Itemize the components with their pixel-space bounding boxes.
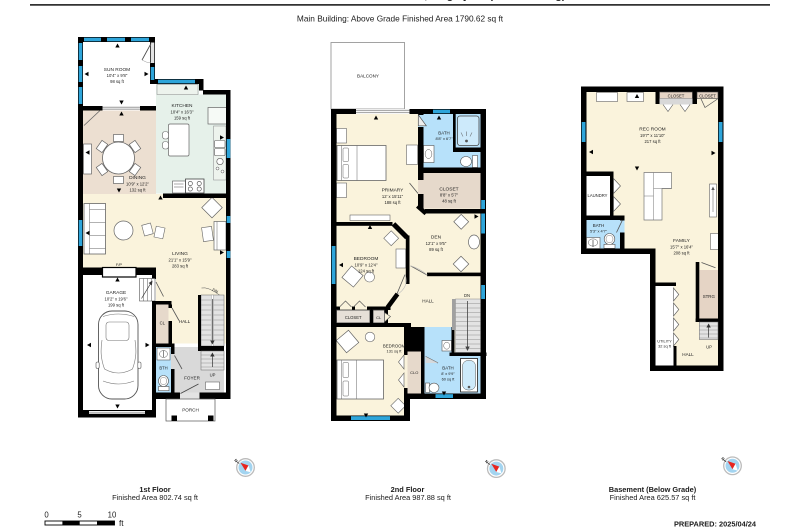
svg-text:CL: CL <box>160 321 166 326</box>
svg-text:PREPARED: 2025/04/24: PREPARED: 2025/04/24 <box>674 520 757 529</box>
svg-text:124 sq ft: 124 sq ft <box>358 269 375 274</box>
svg-text:10'9" x 12'4": 10'9" x 12'4" <box>355 263 378 268</box>
svg-text:98 sq ft: 98 sq ft <box>110 79 125 84</box>
svg-text:HALL: HALL <box>422 299 434 304</box>
svg-text:131 sq ft: 131 sq ft <box>387 349 403 354</box>
svg-text:LAUNDRY: LAUNDRY <box>588 193 608 198</box>
svg-text:FAMILY: FAMILY <box>673 238 691 244</box>
svg-text:HALL: HALL <box>682 352 694 357</box>
svg-text:STRG: STRG <box>703 294 716 299</box>
svg-text:60 sq ft: 60 sq ft <box>442 377 456 382</box>
svg-text:DEN: DEN <box>431 235 442 241</box>
svg-text:FOYER: FOYER <box>184 376 201 381</box>
svg-text:283 sq ft: 283 sq ft <box>172 264 189 269</box>
svg-text:217 sq ft: 217 sq ft <box>644 139 661 144</box>
svg-text:188 sq ft: 188 sq ft <box>384 200 401 205</box>
svg-text:10'9" x 12'2": 10'9" x 12'2" <box>126 182 149 187</box>
svg-text:19'7" x 11'10": 19'7" x 11'10" <box>640 133 665 138</box>
svg-text:CLO: CLO <box>410 370 418 375</box>
svg-text:Main Building: Above Grade Fin: Main Building: Above Grade Finished Area… <box>297 14 504 24</box>
svg-text:15'7" x 16'4": 15'7" x 16'4" <box>670 245 693 250</box>
svg-text:CLOSET: CLOSET <box>668 93 685 98</box>
svg-text:REC ROOM: REC ROOM <box>639 127 665 133</box>
svg-text:48 sq ft: 48 sq ft <box>442 199 457 204</box>
svg-text:5: 5 <box>77 511 82 520</box>
svg-text:10'2" x 19'6": 10'2" x 19'6" <box>105 297 128 302</box>
svg-text:DN: DN <box>464 293 470 298</box>
svg-text:BALCONY: BALCONY <box>357 74 379 79</box>
svg-text:10'4" x 9'8": 10'4" x 9'8" <box>107 73 128 78</box>
svg-text:1234 56 Street SW, Calgary AB: 1234 56 Street SW, Calgary AB (Main Buil… <box>335 0 566 2</box>
svg-text:10'4" x 16'3": 10'4" x 16'3" <box>171 110 194 115</box>
svg-text:LIVING: LIVING <box>172 251 188 257</box>
svg-text:BATH: BATH <box>442 366 453 371</box>
svg-text:208 sq ft: 208 sq ft <box>673 251 690 256</box>
svg-text:21'1" x 15'9": 21'1" x 15'9" <box>169 258 192 263</box>
svg-text:PORCH: PORCH <box>182 408 199 413</box>
svg-text:0: 0 <box>44 511 49 520</box>
svg-text:159 sq ft: 159 sq ft <box>174 116 191 121</box>
svg-text:12'1" x 9'5": 12'1" x 9'5" <box>426 241 447 246</box>
svg-text:8'8" x 5'7": 8'8" x 5'7" <box>440 193 459 198</box>
svg-text:UP: UP <box>210 373 216 378</box>
svg-text:10: 10 <box>108 511 117 520</box>
svg-text:BATH: BATH <box>593 223 604 228</box>
svg-text:CL: CL <box>376 315 382 320</box>
svg-text:Finished Area 802.74 sq ft: Finished Area 802.74 sq ft <box>112 493 198 502</box>
svg-text:BEDROOM: BEDROOM <box>354 256 379 262</box>
svg-text:132 sq ft: 132 sq ft <box>129 188 146 193</box>
svg-text:DINING: DINING <box>129 175 146 181</box>
svg-text:8' x 9'9": 8' x 9'9" <box>441 371 455 376</box>
svg-text:Finished Area 987.88 sq ft: Finished Area 987.88 sq ft <box>365 493 451 502</box>
svg-text:BATH: BATH <box>438 131 449 136</box>
svg-text:5'3" x 4'7": 5'3" x 4'7" <box>590 229 608 234</box>
svg-text:8'8" x 6'7": 8'8" x 6'7" <box>435 136 453 141</box>
svg-text:Finished Area 625.57 sq ft: Finished Area 625.57 sq ft <box>610 493 696 502</box>
svg-text:PRIMARY: PRIMARY <box>382 188 405 194</box>
svg-text:F/P: F/P <box>116 262 123 267</box>
svg-text:32 sq ft: 32 sq ft <box>658 344 672 349</box>
svg-text:CLOSET: CLOSET <box>699 93 716 98</box>
svg-text:89 sq ft: 89 sq ft <box>429 247 444 252</box>
svg-text:199 sq ft: 199 sq ft <box>108 303 125 308</box>
svg-text:CLOSET: CLOSET <box>345 315 362 320</box>
svg-text:UP: UP <box>706 345 712 350</box>
svg-text:GARAGE: GARAGE <box>106 290 127 296</box>
svg-text:BTH: BTH <box>159 366 167 371</box>
svg-text:KITCHEN: KITCHEN <box>171 103 193 109</box>
svg-text:12' x 15'11": 12' x 15'11" <box>382 194 404 199</box>
svg-text:ft: ft <box>119 518 124 528</box>
svg-text:HALL: HALL <box>179 319 191 324</box>
